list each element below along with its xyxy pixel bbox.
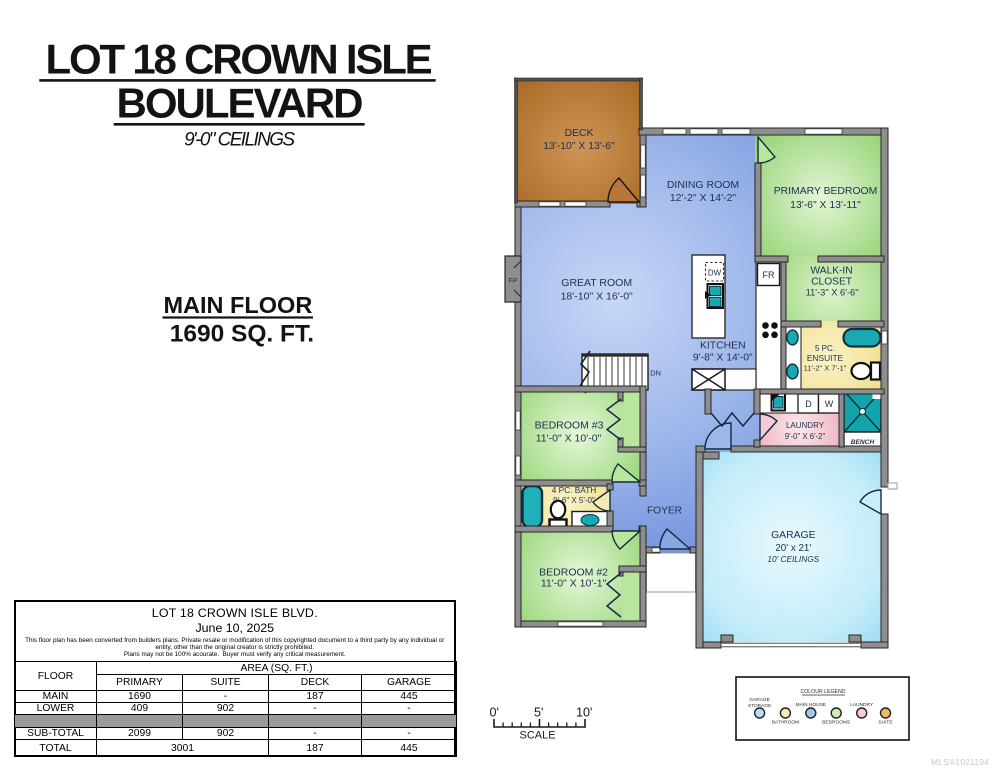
- svg-text:0': 0': [490, 706, 499, 720]
- svg-text:1690 SQ. FT.: 1690 SQ. FT.: [170, 320, 314, 347]
- svg-text:BEDROOMS: BEDROOMS: [822, 720, 850, 726]
- svg-text:CLOSET: CLOSET: [811, 277, 852, 288]
- svg-text:D: D: [805, 399, 812, 409]
- svg-text:GREAT ROOM: GREAT ROOM: [561, 277, 632, 289]
- svg-text:DW: DW: [708, 269, 722, 278]
- svg-text:BENCH: BENCH: [851, 439, 875, 446]
- svg-text:BATHROOM: BATHROOM: [772, 720, 799, 726]
- svg-text:9'-8" X 14'-0": 9'-8" X 14'-0": [693, 353, 753, 364]
- svg-text:WALK-IN: WALK-IN: [811, 266, 853, 277]
- svg-text:FOYER: FOYER: [647, 506, 682, 517]
- svg-text:LAUNDRY: LAUNDRY: [850, 702, 874, 708]
- svg-text:GARAGE: GARAGE: [771, 530, 816, 541]
- svg-text:SCALE: SCALE: [520, 730, 556, 742]
- svg-text:BEDROOM #3: BEDROOM #3: [535, 420, 604, 432]
- svg-text:13'-10" X 13'-6": 13'-10" X 13'-6": [543, 141, 615, 152]
- svg-text:20' x 21': 20' x 21': [775, 543, 811, 554]
- svg-text:5 PC.: 5 PC.: [815, 344, 835, 353]
- svg-text:MAIN HOUSE: MAIN HOUSE: [796, 702, 826, 708]
- svg-text:DINING ROOM: DINING ROOM: [667, 179, 739, 191]
- svg-text:9'-0" CEILINGS: 9'-0" CEILINGS: [184, 130, 295, 151]
- svg-text:BOULEVARD: BOULEVARD: [117, 80, 363, 127]
- svg-text:SUITE: SUITE: [878, 720, 892, 726]
- svg-text:MAIN FLOOR: MAIN FLOOR: [163, 292, 312, 318]
- svg-text:9'-0" X 6'-2": 9'-0" X 6'-2": [785, 432, 826, 441]
- svg-text:4 PC. BATH: 4 PC. BATH: [552, 485, 597, 495]
- svg-text:12'-2" X 14'-2": 12'-2" X 14'-2": [670, 192, 737, 204]
- svg-text:GARAGE: GARAGE: [749, 697, 770, 703]
- svg-text:DECK: DECK: [565, 128, 594, 139]
- svg-text:DN: DN: [650, 369, 661, 378]
- svg-text:10' CEILINGS: 10' CEILINGS: [767, 554, 819, 564]
- svg-text:LAUNDRY: LAUNDRY: [786, 421, 825, 430]
- svg-text:KITCHEN: KITCHEN: [700, 341, 746, 352]
- svg-text:11'-0" X 10'-0": 11'-0" X 10'-0": [536, 433, 602, 445]
- svg-text:FR: FR: [763, 270, 775, 280]
- svg-text:11'-0" X 10'-1": 11'-0" X 10'-1": [541, 578, 607, 590]
- svg-text:5': 5': [534, 706, 543, 720]
- svg-text:LOT 18 CROWN ISLE: LOT 18 CROWN ISLE: [46, 36, 432, 83]
- svg-text:10': 10': [576, 706, 592, 720]
- svg-text:FP: FP: [509, 278, 518, 285]
- svg-text:PRIMARY BEDROOM: PRIMARY BEDROOM: [774, 186, 878, 197]
- svg-text:18'-10" X 16'-0": 18'-10" X 16'-0": [561, 291, 633, 303]
- svg-text:COLOUR LEGEND: COLOUR LEGEND: [801, 689, 846, 695]
- svg-text:11'-3" X 6'-6": 11'-3" X 6'-6": [806, 288, 859, 298]
- svg-text:13'-6" X 13'-11": 13'-6" X 13'-11": [790, 200, 861, 211]
- svg-text:ENSUITE: ENSUITE: [807, 353, 844, 363]
- svg-text:11'-2" X 7'-1": 11'-2" X 7'-1": [804, 364, 847, 373]
- svg-text:W: W: [825, 399, 834, 409]
- svg-text:9'-6" X 5'-0": 9'-6" X 5'-0": [553, 496, 595, 505]
